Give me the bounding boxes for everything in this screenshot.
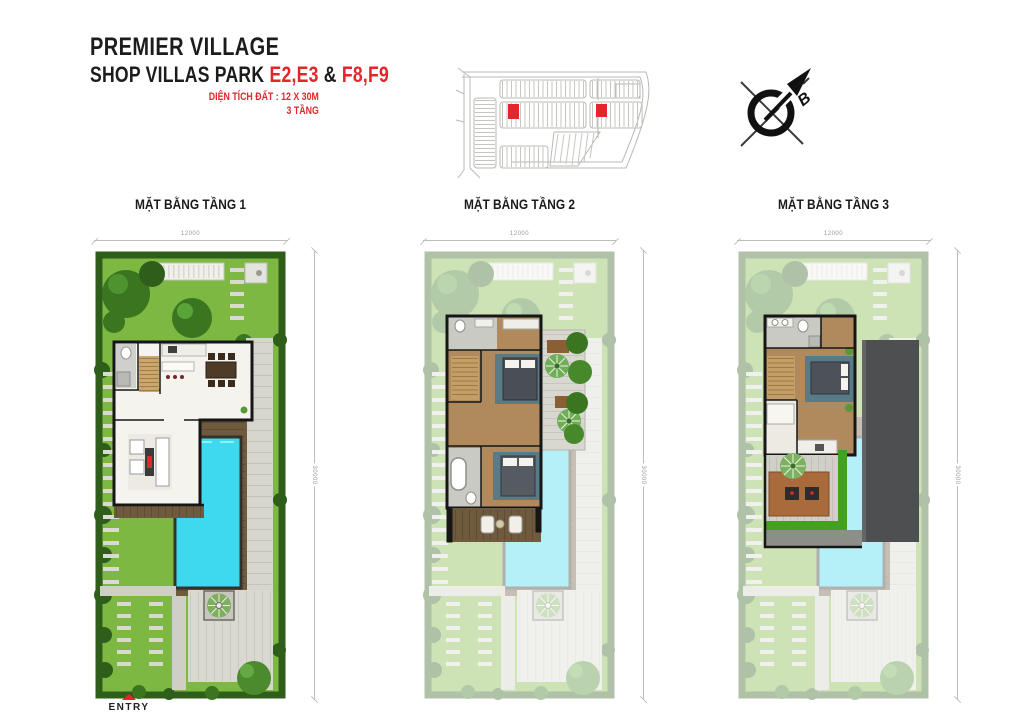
floor-plan-1-title: MẶT BẰNG TẦNG 1 (108, 196, 272, 212)
project-title: PREMIER VILLAGE (90, 34, 319, 62)
compass-north-icon: B (733, 58, 825, 154)
floor-plan-3-illustration (737, 250, 930, 700)
subtitle-prefix: SHOP VILLAS PARK (90, 62, 264, 87)
dimension-width-1: 12000 (94, 240, 287, 241)
floor-plan-2-illustration (423, 250, 616, 700)
subtitle-ampersand: & (324, 62, 337, 87)
entry-arrow-icon (122, 694, 136, 700)
entry-label: ENTRY (100, 702, 158, 713)
dimension-height-1: 30000 (314, 250, 315, 700)
floor-plan-2-title: MẶT BẰNG TẦNG 2 (437, 196, 601, 212)
dimension-height-2: 30000 (643, 250, 644, 700)
title-block: PREMIER VILLAGE SHOP VILLAS PARK E2,E3 &… (90, 34, 319, 118)
highlight-plot-f (596, 104, 607, 117)
subtitle-lots-1: E2,E3 (269, 62, 318, 87)
master-plan-map (450, 50, 660, 180)
floor3-layout (765, 316, 919, 547)
map-blocks (474, 80, 642, 168)
dimension-width-3: 12000 (737, 240, 930, 241)
dimension-width-2: 12000 (423, 240, 616, 241)
highlight-plot-e (508, 104, 519, 119)
floor-plan-3-title: MẶT BẰNG TẦNG 3 (751, 196, 915, 212)
project-subtitle: SHOP VILLAS PARK E2,E3 & F8,F9 (90, 62, 319, 88)
land-area-line: DIỆN TÍCH ĐẤT : 12 X 30M (90, 91, 319, 105)
subtitle-lots-2: F8,F9 (342, 62, 389, 87)
entry-marker: ENTRY (100, 694, 158, 713)
floors-line: 3 TẦNG (90, 105, 319, 119)
dimension-height-3: 30000 (957, 250, 958, 700)
floor-plan-1-illustration (94, 250, 287, 700)
